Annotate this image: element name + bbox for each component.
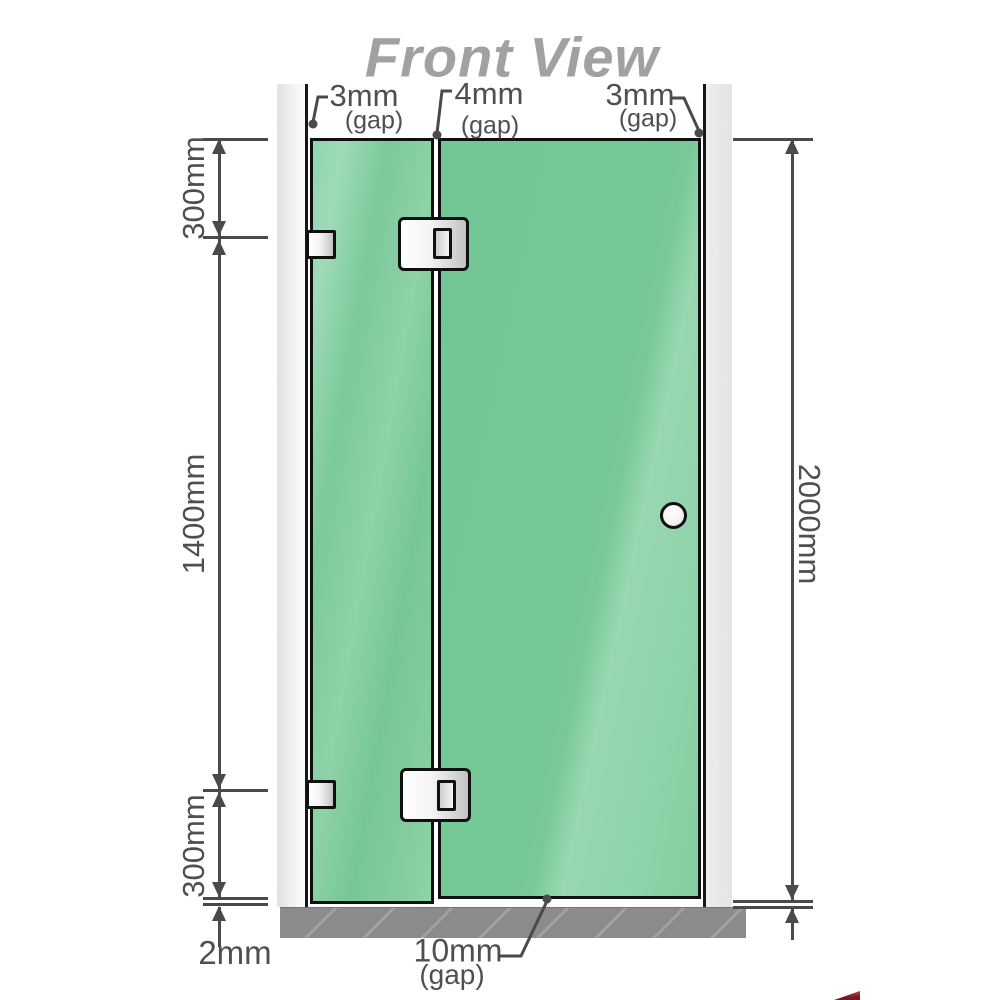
hinge-bottom-knuckle: [437, 780, 456, 811]
gap-label-top-middle-value: 4mm: [455, 76, 524, 112]
dim-line-left-middle: [218, 239, 221, 790]
floor-base: [280, 907, 746, 938]
dim-tick: [203, 236, 268, 239]
arrowhead: [212, 906, 226, 921]
arrowhead: [212, 240, 226, 255]
logo-mark-fragment: [834, 991, 860, 1000]
arrowhead: [212, 139, 226, 154]
dim-tick: [733, 138, 813, 141]
arrowhead: [785, 139, 799, 154]
gap-label-top-right-qualifier: (gap): [619, 105, 677, 134]
dim-tick: [733, 906, 813, 909]
wall-bracket-top: [306, 230, 336, 259]
dim-tick: [203, 897, 268, 900]
door-knob: [660, 502, 687, 529]
arrowhead: [212, 774, 226, 789]
dim-tick: [733, 900, 813, 903]
left-wall: [277, 84, 305, 907]
hinge-top-knuckle: [433, 228, 452, 259]
arrowhead: [212, 221, 226, 236]
dim-label-right-overall: 2000mm: [791, 464, 827, 585]
arrowhead: [785, 885, 799, 900]
shower-screen-front-view-diagram: Front View 300mm 1400mm 300mm 2mm 2000mm…: [0, 0, 1000, 1000]
dim-label-floor-gap: 2mm: [198, 934, 271, 972]
gap-label-top-middle-qualifier: (gap): [461, 112, 519, 141]
wall-bracket-bottom: [306, 780, 336, 809]
arrowhead: [212, 882, 226, 897]
dim-label-left-middle: 1400mm: [176, 454, 212, 575]
gap-label-bottom-qualifier: (gap): [419, 959, 484, 991]
gap-label-top-left-qualifier: (gap): [345, 107, 403, 136]
hinge-bottom: [400, 768, 471, 822]
dim-label-left-bottom: 300mm: [176, 794, 212, 897]
arrowhead: [785, 908, 799, 923]
dim-label-left-top: 300mm: [176, 136, 212, 239]
arrowhead: [212, 792, 226, 807]
right-wall: [706, 84, 732, 907]
